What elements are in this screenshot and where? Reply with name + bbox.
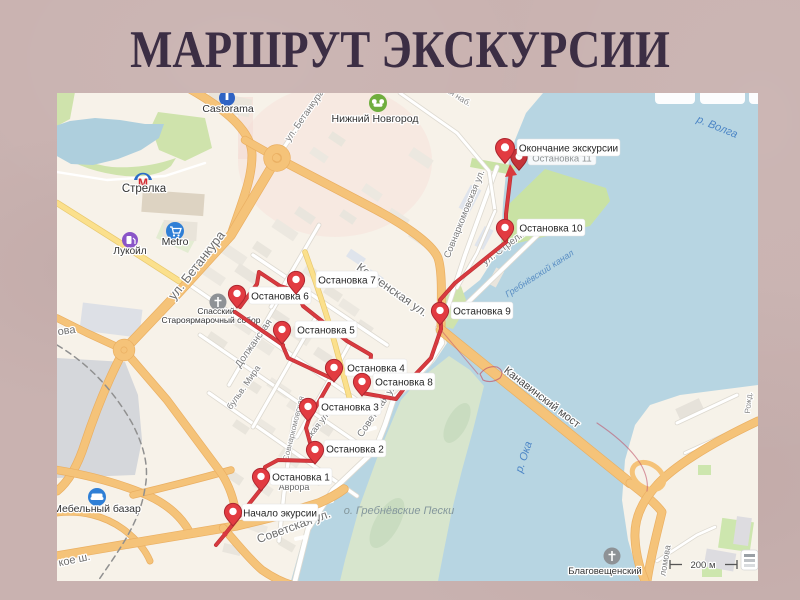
svg-text:Нижний Новгород: Нижний Новгород bbox=[332, 113, 419, 125]
svg-text:Metro: Metro bbox=[162, 236, 189, 248]
svg-text:Остановка 1: Остановка 1 bbox=[272, 472, 330, 483]
svg-text:Начало экурсии: Начало экурсии bbox=[243, 508, 317, 519]
svg-text:Остановка 10: Остановка 10 bbox=[519, 223, 583, 234]
svg-text:Castorama: Castorama bbox=[202, 103, 254, 115]
svg-text:Остановка 9: Остановка 9 bbox=[453, 306, 511, 317]
svg-text:Остановка 4: Остановка 4 bbox=[347, 363, 405, 374]
svg-text:Стрелка: Стрелка bbox=[122, 183, 167, 195]
svg-text:200 м: 200 м bbox=[690, 560, 715, 571]
svg-text:Рожд.: Рожд. bbox=[743, 392, 754, 414]
svg-text:Благовещенский: Благовещенский bbox=[568, 566, 641, 577]
svg-text:Лукойл: Лукойл bbox=[113, 246, 146, 257]
svg-text:Остановка 6: Остановка 6 bbox=[251, 291, 309, 302]
svg-text:Мебельный базар: Мебельный базар bbox=[57, 503, 141, 515]
svg-text:Остановка 2: Остановка 2 bbox=[326, 444, 384, 455]
svg-text:о. Гребнёвские Пески: о. Гребнёвские Пески bbox=[344, 505, 455, 517]
svg-text:Окончание экскурсии: Окончание экскурсии bbox=[519, 143, 618, 154]
svg-text:Остановка 7: Остановка 7 bbox=[318, 275, 376, 286]
svg-text:Остановка 8: Остановка 8 bbox=[375, 377, 433, 388]
svg-text:Остановка 3: Остановка 3 bbox=[321, 402, 379, 413]
svg-text:Остановка 5: Остановка 5 bbox=[297, 325, 355, 336]
